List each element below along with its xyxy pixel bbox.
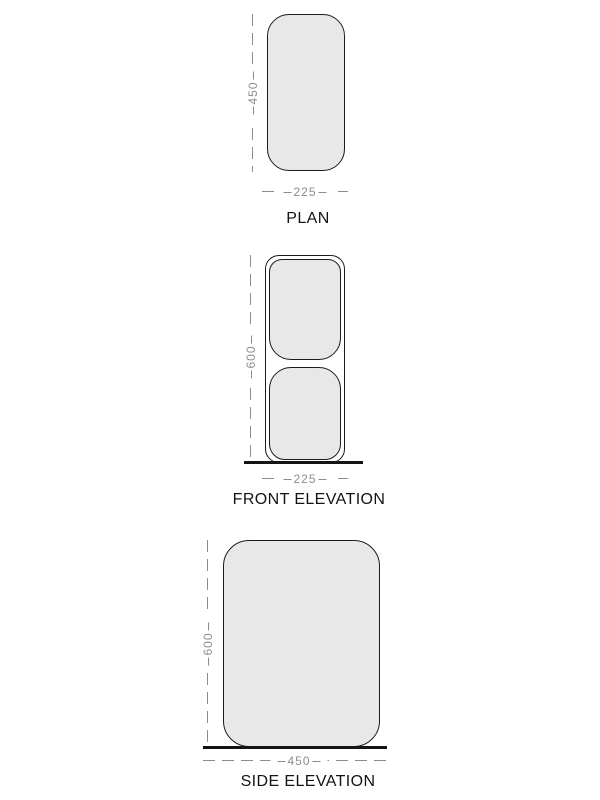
plan-width-dimension-label: 225 [276,185,333,199]
side-width-dimension-label: 450 [270,754,327,768]
side-height-dimension-value: 600 [201,632,215,655]
front-height-dimension-label: 600 [244,328,258,385]
front-lower-panel [269,367,341,460]
view-label-front-elevation: FRONT ELEVATION [233,491,386,509]
plan-height-dimension-value: 450 [246,81,260,104]
front-width-dimension-value: 225 [293,472,316,486]
drawing-canvas: 450 225 PLAN 600 225 FRONT ELEVATION 600… [0,0,600,800]
dimension-tick [283,479,291,480]
front-ground-line [244,461,363,464]
front-height-dimension-value: 600 [244,345,258,368]
plan-width-dimension-value: 225 [293,185,316,199]
view-label-plan: PLAN [286,210,329,228]
dimension-tick [277,761,285,762]
dimension-tick [208,658,209,666]
dimension-tick [283,192,291,193]
dimension-tick [319,192,327,193]
side-ground-line [203,746,387,749]
dimension-tick [253,71,254,79]
dimension-tick [253,107,254,115]
dimension-tick [208,622,209,630]
side-height-dimension-label: 600 [201,615,215,672]
front-width-dimension-label: 225 [276,472,333,486]
dimension-tick [251,335,252,343]
plan-height-dimension-label: 450 [246,64,260,121]
side-outline [223,540,380,747]
dimension-tick [319,479,327,480]
front-upper-panel [269,259,341,360]
side-width-dimension-value: 450 [287,754,310,768]
dimension-tick [251,371,252,379]
view-label-side-elevation: SIDE ELEVATION [241,773,376,791]
dimension-tick [313,761,321,762]
plan-outline [267,14,345,171]
